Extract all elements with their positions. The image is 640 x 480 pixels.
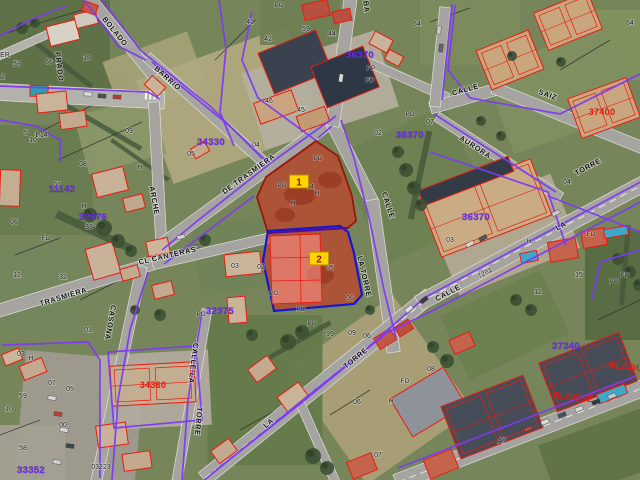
parcel-number-label: 59 [19,393,27,400]
building-footprint [0,170,21,207]
cadastral-code-label: H [138,164,143,171]
cadastral-code-label: FD [42,235,51,242]
zone-number-label: 37340 [552,341,580,352]
building-footprint [36,91,68,113]
parcel-number-label: 00 [59,422,67,429]
tree [407,181,421,195]
tree-shadow [477,117,482,122]
tree-shadow [112,235,118,241]
building [36,91,68,113]
parcel-number-label: 05 [66,386,74,393]
tree [125,245,137,257]
cadastral-code-label: PD [277,182,286,189]
parcel-number-label: 66 [45,59,53,66]
parcel-number-label: 06 [346,295,354,302]
parcel-number-label: 06 [10,219,18,226]
parcel-number-label: 45 [297,107,305,114]
tree-shadow [296,326,302,332]
cadastral-code-label: PD [274,2,283,9]
cadastral-code-label: H [291,200,296,207]
tree-shadow [307,450,314,457]
building [0,170,21,207]
parcel-vegetation [318,172,342,188]
parcel-number-label: 64 [626,20,634,27]
building-number-label: 34360 [140,380,167,390]
parcel-marker-2[interactable]: 2 [310,252,329,266]
zone-number-label: 36370 [396,130,424,141]
parcel-number-label: 12 [534,289,542,296]
cadastral-code-label: H [315,190,320,197]
parcel-number-label: 03 [231,263,239,270]
parcel-marker-1[interactable]: 1 [290,175,309,189]
tree-shadow [366,306,371,311]
building [59,110,87,129]
cadastral-code-label: FD [401,378,410,385]
tree [476,116,486,126]
parcel-number-label: 32 [59,274,67,281]
tree-shadow [526,305,531,310]
cadastral-map-viewport[interactable]: ER536618251.1410090541425944644645040207… [0,0,640,480]
cadastral-code-label: PD [269,290,278,297]
zone-number-label: 33352 [17,465,45,476]
tree [295,325,309,339]
tree-shadow [282,336,289,343]
car [437,26,442,34]
cadastral-code-label: FD [621,272,630,279]
zone-number-label: 32376 [79,212,107,223]
parcel-number-label: 41 [246,19,254,26]
tree [365,305,375,315]
tree [510,294,522,306]
cadastral-code-label: H [82,203,87,210]
building-footprint [122,451,152,472]
parcel-number-label: 44 [328,31,336,38]
zone-number-label: 11142 [49,184,76,195]
tree-shadow [441,355,447,361]
parcel-number-label: 03223 [91,464,111,471]
tree [280,334,296,350]
parcel-number-label: 05 [326,265,334,272]
tree-shadow [321,462,327,468]
parcel-number-label: 10 [5,406,13,413]
parcel-number-label: 15 [575,272,583,279]
cadastral-code-label: PP [367,65,376,72]
parcel-number-label: 03 [17,351,25,358]
parcel-number-label: 04 [563,179,571,186]
street-label: BA [361,0,371,13]
parcel-number-label: 07 [374,452,382,459]
parcel-number-label: A7 [498,438,507,445]
building [122,451,152,472]
tree-shadow [408,182,414,188]
car [98,94,106,98]
parcel-number-label: 07 [48,380,56,387]
parcel-number-label: 42 [264,36,272,43]
parcel-number-label: 10 [29,137,37,144]
parcel-number-label: 01 [84,327,92,334]
parcel-number-label: 09 [125,128,133,135]
cadastral-code-label: PD [307,320,316,327]
cadastral-code-label: PO [609,278,618,285]
cadastral-code-label: PD [296,306,305,313]
cadastral-code-label: H [29,355,34,362]
zone-number-label: 32375 [206,306,234,317]
parcel-number-label: 2 [1,74,5,81]
parcel-number-label: 03 [446,237,454,244]
building [547,238,578,263]
parcel-number-label: ER [0,52,10,59]
parcel-number-label: 64 [413,21,421,28]
zone-number-label: 36370 [346,50,374,61]
building-footprint [547,238,578,263]
tree [556,57,566,67]
parcel-number-label: 53 [13,61,21,68]
tree-shadow [557,58,562,63]
tree-shadow [497,132,502,137]
tree [440,354,454,368]
building-number-label: 37400 [589,107,616,117]
parcel-number-label: 33 [85,224,93,231]
car [84,92,92,96]
tree-shadow [393,147,398,152]
zone-number-label: 34330 [197,137,225,148]
tree [320,461,334,475]
parcel-number-label: 12 [13,272,21,279]
tree-shadow [400,164,406,170]
parcel-number-label: 18 [83,55,91,62]
parcel-number-label: 08 [427,366,435,373]
parcel-number-label: 05 [187,151,195,158]
parcel-vegetation [275,208,295,222]
parcel-number-label: 46 [265,98,273,105]
parcel-number-label: 07 [426,119,434,126]
parcel-marker-label: 1 [296,178,302,189]
tree-shadow [416,200,421,205]
parcel-number-label: 02 [257,264,265,271]
tree [154,309,166,321]
cadastral-code-label: FD [366,77,375,84]
tree [399,163,413,177]
car [113,95,121,99]
parcel-marker-label: 2 [316,255,322,266]
cadastral-code-label: H [389,398,394,405]
parcel-number-label: 06 [353,399,361,406]
car [439,44,444,52]
zone-number-label: 36370 [462,212,490,223]
parcel-number-label: 08 [79,161,87,168]
tree [496,131,506,141]
parcel-number-label: 99 [326,331,334,338]
tree [305,448,321,464]
building-footprint [59,110,87,129]
tree-shadow [508,52,513,57]
tree [246,329,258,341]
cadastral-code-label: FD [587,231,596,238]
tree [427,341,439,353]
tree-shadow [126,246,131,251]
tree-shadow [428,342,433,347]
parcel-number-label: 59 [302,26,310,33]
parcel-number-label: 02 [374,130,382,137]
tree-shadow [247,330,252,335]
tree-shadow [155,310,160,315]
tree-shadow [511,295,516,300]
parcel-number-label: 5 [24,130,28,137]
tree [525,304,537,316]
tree [111,234,125,248]
tree-shadow [634,280,639,285]
parcel-number-label: 09 [348,330,356,337]
cadastral-map[interactable]: ER536618251.1410090541425944644645040207… [0,0,640,480]
cadastral-code-label: PD [313,155,322,162]
cadastral-code-label: H [527,238,532,245]
tree-shadow [131,306,136,311]
parcel-number-label: 06 [363,333,371,340]
cadastral-code-label: PD [405,111,414,118]
cadastral-code-label: PD [196,311,205,318]
tree [392,146,404,158]
parcel-number-label: 04 [252,142,260,149]
tree [415,199,427,211]
parcel-number-label: 58 [19,445,27,452]
tree [507,51,517,61]
